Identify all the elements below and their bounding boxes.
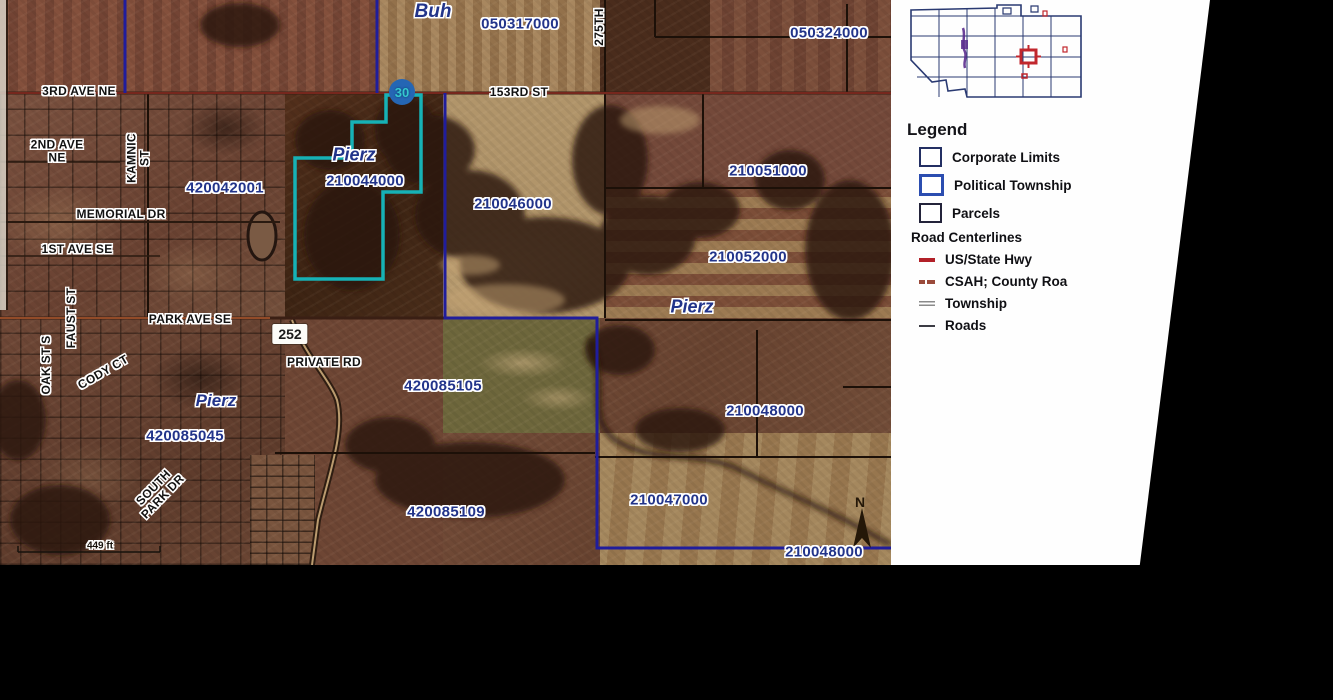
- parcel-id-label: 420085045: [146, 428, 224, 445]
- road-label: PRIVATE RD: [287, 355, 361, 369]
- road-label: 275TH: [592, 8, 606, 46]
- highway-252-shield: 252: [272, 324, 307, 344]
- legend-item-label: US/State Hwy: [945, 252, 1032, 267]
- highlighted-township-marker: [1016, 11, 1067, 78]
- legend-item-label: Political Township: [954, 178, 1072, 193]
- county-road-30-shield: 30: [389, 79, 415, 105]
- legend-item-label: Parcels: [952, 206, 1000, 221]
- legend-item-label: Township: [945, 296, 1007, 311]
- road-label: MEMORIAL DR: [76, 207, 165, 221]
- csah-swatch: [919, 280, 935, 284]
- township-label: Buh: [415, 1, 452, 23]
- legend-item-csah-county-road: CSAH; County Roa: [919, 274, 1210, 289]
- township-road-swatch: [919, 301, 935, 306]
- legend-item-parcels: Parcels: [919, 203, 1210, 223]
- track-oval: [248, 212, 276, 260]
- parcel-id-label: 420085109: [407, 504, 485, 521]
- parcel-id-label: 210048000: [785, 544, 863, 561]
- legend-item-label: Roads: [945, 318, 986, 333]
- township-label: Pierz: [670, 297, 713, 318]
- scale-bar-label: 449 ft: [87, 541, 113, 552]
- legend-item-corporate-limits: Corporate Limits: [919, 147, 1210, 167]
- parcel-id-label: 210052000: [709, 249, 787, 266]
- parcel-id-label: 420042001: [186, 180, 264, 197]
- parcel-id-label: 210048000: [726, 403, 804, 420]
- map-sidebar: Legend Corporate Limits Political Townsh…: [891, 0, 1210, 565]
- parcel-id-label: 210047000: [630, 492, 708, 509]
- parcel-map[interactable]: 050317000 050324000 210044000 420042001 …: [0, 0, 891, 565]
- legend-item-roads: Roads: [919, 318, 1210, 333]
- road-label: OAK ST S: [39, 335, 53, 394]
- road-label: 3RD AVE NE: [42, 84, 116, 98]
- us-state-hwy-swatch: [919, 258, 935, 262]
- parcel-id-label: 210044000: [326, 173, 404, 190]
- river-blob: [961, 40, 968, 49]
- road-label: FAUST ST: [64, 288, 78, 348]
- city-label: Pierz: [196, 391, 237, 411]
- scanned-map-page: 050317000 050324000 210044000 420042001 …: [0, 0, 1333, 700]
- political-township-swatch: [919, 174, 944, 196]
- corporate-limits-swatch: [919, 147, 942, 167]
- roads-swatch: [919, 325, 935, 327]
- legend-item-label: Corporate Limits: [952, 150, 1060, 165]
- road-label: 1ST AVE SE: [41, 242, 112, 256]
- road-label: 2ND AVE NE: [29, 138, 85, 163]
- legend-item-us-state-hwy: US/State Hwy: [919, 252, 1210, 267]
- parcel-id-label: 050317000: [481, 16, 559, 33]
- legend-section-label: Road Centerlines: [911, 230, 1022, 245]
- parcels-swatch: [919, 203, 942, 223]
- road-label: 153RD ST: [490, 85, 548, 99]
- township-grid: [911, 8, 1081, 97]
- legend-title: Legend: [907, 120, 1210, 140]
- legend-item-political-township: Political Township: [919, 174, 1210, 196]
- legend-item-label: CSAH; County Roa: [945, 274, 1067, 289]
- parcel-id-label: 420085105: [404, 378, 482, 395]
- legend-item-township: Township: [919, 296, 1210, 311]
- county-locator-inset[interactable]: [903, 2, 1099, 108]
- north-arrow-label: N: [855, 494, 865, 510]
- road-label: KAMNIC ST: [125, 129, 150, 187]
- parcel-id-label: 210051000: [729, 163, 807, 180]
- map-vector-overlay: [0, 0, 891, 565]
- parcel-id-label: 050324000: [790, 25, 868, 42]
- township-label: Pierz: [332, 145, 375, 166]
- road-label: PARK AVE SE: [149, 312, 231, 326]
- legend-road-centerlines-title: Road Centerlines: [911, 230, 1210, 245]
- scan-edge: [0, 0, 8, 310]
- parcel-id-label: 210046000: [474, 196, 552, 213]
